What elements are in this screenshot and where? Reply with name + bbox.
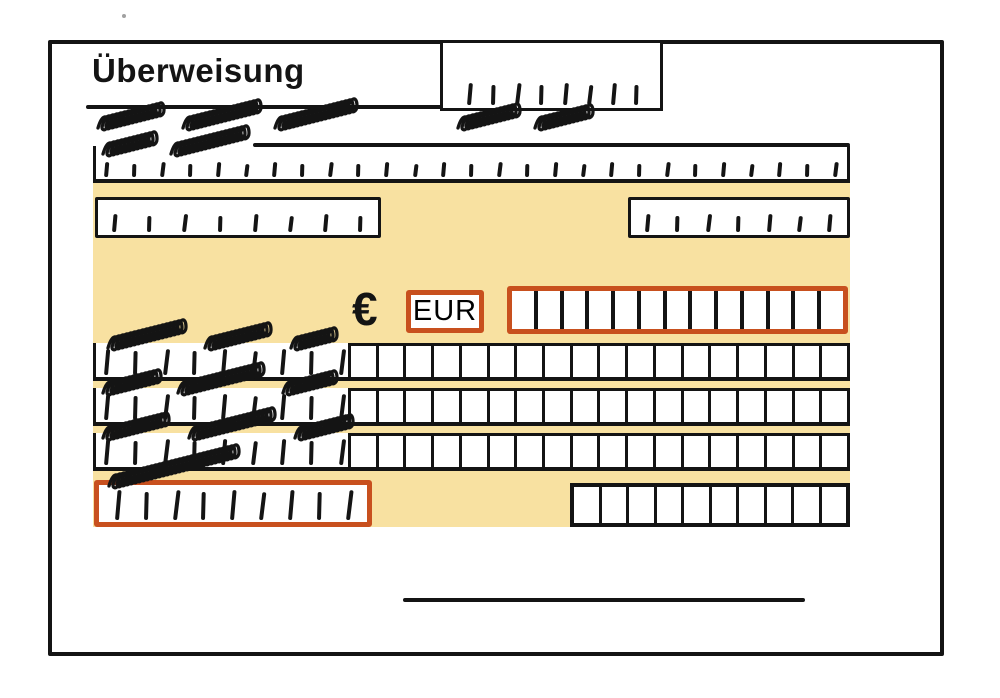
- tick-mark: [188, 164, 192, 177]
- input-cell: [709, 487, 737, 523]
- input-cell: [740, 291, 766, 329]
- tick-mark: [133, 396, 137, 420]
- tick-mark: [230, 490, 236, 520]
- input-cell: [376, 436, 404, 467]
- input-cell: [792, 391, 820, 422]
- tick-mark: [280, 439, 286, 465]
- input-cell: [403, 436, 431, 467]
- tick-mark: [797, 216, 802, 232]
- tick-mark: [441, 162, 446, 177]
- tick-mark: [637, 164, 641, 177]
- tick-mark: [358, 216, 362, 232]
- tick-mark: [317, 492, 321, 520]
- input-cell: [514, 346, 542, 377]
- ink-speck: [122, 14, 126, 18]
- entry-box-left[interactable]: [95, 197, 381, 238]
- signature-line: [403, 598, 805, 602]
- input-cell: [376, 346, 404, 377]
- tick-mark: [346, 490, 353, 520]
- scribble-label: [100, 420, 172, 444]
- input-cell: [764, 436, 792, 467]
- tick-mark: [112, 214, 117, 232]
- input-cell: [597, 436, 625, 467]
- char-input-box-bottom-right[interactable]: [570, 483, 850, 527]
- tick-mark: [609, 162, 614, 177]
- currency-code-box: EUR: [406, 290, 484, 333]
- tick-mark: [147, 216, 151, 232]
- input-cell: [791, 487, 819, 523]
- input-cell: [819, 346, 847, 377]
- tick-mark: [216, 162, 221, 177]
- scribble-label: [106, 468, 241, 492]
- input-cell: [431, 391, 459, 422]
- tick-guides: [645, 214, 831, 232]
- tick-mark: [300, 164, 304, 177]
- input-cell: [764, 391, 792, 422]
- char-cells: [348, 433, 847, 467]
- tick-guides: [112, 214, 362, 232]
- input-cell: [714, 291, 740, 329]
- tick-mark: [251, 441, 257, 465]
- input-cell: [514, 391, 542, 422]
- input-cell: [791, 291, 817, 329]
- scribble-label: [280, 375, 338, 399]
- input-cell: [431, 436, 459, 467]
- tick-mark: [160, 162, 165, 177]
- scribble-label: [95, 110, 167, 134]
- tick-mark: [581, 164, 586, 177]
- input-cell: [764, 346, 792, 377]
- tick-mark: [132, 164, 136, 177]
- input-cell: [819, 391, 847, 422]
- input-cell: [766, 291, 792, 329]
- input-cell: [599, 487, 627, 523]
- input-cell: [570, 436, 598, 467]
- tick-mark: [309, 396, 313, 420]
- input-cell: [708, 346, 736, 377]
- input-cell: [542, 346, 570, 377]
- input-cell: [597, 346, 625, 377]
- tick-mark: [539, 85, 543, 105]
- input-cell: [792, 436, 820, 467]
- input-cell: [817, 291, 843, 329]
- tick-mark: [767, 214, 772, 232]
- scribble-label: [292, 420, 354, 444]
- input-cell: [819, 487, 847, 523]
- transfer-form-illustration: Überweisung € EUR: [0, 0, 1000, 698]
- tick-mark: [827, 214, 832, 232]
- tick-mark: [133, 351, 137, 375]
- input-cell: [431, 346, 459, 377]
- input-cell: [574, 487, 599, 523]
- input-cell: [653, 346, 681, 377]
- scribble-label: [168, 136, 253, 160]
- tick-mark: [133, 441, 137, 465]
- scribble-label: [186, 420, 278, 444]
- input-cell: [459, 436, 487, 467]
- scribble-label: [100, 136, 158, 160]
- input-cell: [534, 291, 560, 329]
- tick-guides: [467, 83, 638, 105]
- scribble-label: [272, 110, 360, 134]
- tick-mark: [491, 85, 495, 105]
- tick-mark: [563, 83, 568, 105]
- input-cell: [736, 487, 764, 523]
- input-cell: [487, 436, 515, 467]
- amount-input-cells[interactable]: [507, 286, 848, 334]
- input-cell: [681, 391, 709, 422]
- tick-mark: [201, 492, 205, 520]
- tick-mark: [413, 164, 418, 177]
- input-cell: [688, 291, 714, 329]
- input-cell: [654, 487, 682, 523]
- tick-mark: [693, 164, 697, 177]
- input-cell: [663, 291, 689, 329]
- euro-symbol: €: [352, 286, 378, 332]
- input-cell: [597, 391, 625, 422]
- scribble-label: [288, 330, 340, 354]
- input-cell: [764, 487, 792, 523]
- scribble-label: [175, 375, 265, 399]
- form-title: Überweisung: [92, 52, 305, 90]
- scribble-label: [105, 330, 190, 354]
- input-cell: [736, 391, 764, 422]
- tick-mark: [634, 85, 638, 105]
- tick-mark: [805, 164, 809, 177]
- reference-entry-box[interactable]: [440, 40, 663, 111]
- tick-mark: [309, 441, 313, 465]
- tick-mark: [280, 349, 286, 375]
- tick-mark: [323, 214, 328, 232]
- tick-mark: [218, 216, 222, 232]
- input-cell: [708, 391, 736, 422]
- tick-mark: [553, 162, 558, 177]
- input-cell: [403, 391, 431, 422]
- tick-mark: [467, 83, 472, 105]
- input-cell: [585, 291, 611, 329]
- input-cell: [625, 346, 653, 377]
- tick-mark: [115, 490, 121, 520]
- input-cell: [653, 391, 681, 422]
- tick-mark: [525, 164, 529, 177]
- input-cell: [637, 291, 663, 329]
- tick-mark: [736, 216, 740, 232]
- input-cell: [736, 436, 764, 467]
- input-cell: [348, 346, 376, 377]
- input-cell: [403, 346, 431, 377]
- scribble-label: [455, 110, 523, 134]
- tick-mark: [309, 351, 313, 375]
- input-cell: [542, 391, 570, 422]
- scribble-label: [100, 375, 162, 399]
- tick-mark: [288, 490, 294, 520]
- input-cell: [542, 436, 570, 467]
- input-cell: [792, 346, 820, 377]
- input-cell: [708, 436, 736, 467]
- input-cell: [626, 487, 654, 523]
- input-cell: [487, 391, 515, 422]
- tick-mark: [328, 162, 333, 177]
- tick-mark: [587, 85, 593, 105]
- tick-mark: [665, 162, 670, 177]
- input-cell: [681, 487, 709, 523]
- tick-mark: [259, 492, 266, 520]
- tick-mark: [675, 216, 679, 232]
- input-cell: [514, 436, 542, 467]
- input-cell: [459, 391, 487, 422]
- tick-mark: [182, 214, 188, 232]
- tick-mark: [104, 162, 109, 177]
- tick-mark: [833, 162, 838, 177]
- tick-guides: [115, 490, 349, 520]
- tick-mark: [749, 164, 754, 177]
- tick-mark: [777, 162, 782, 177]
- input-cell: [459, 346, 487, 377]
- tick-mark: [384, 162, 389, 177]
- tick-mark: [469, 164, 473, 177]
- char-cells: [348, 343, 847, 377]
- char-cells: [348, 388, 847, 422]
- input-cell: [625, 436, 653, 467]
- tick-mark: [244, 164, 249, 177]
- input-cell: [570, 391, 598, 422]
- tick-mark: [288, 216, 293, 232]
- tick-mark: [272, 162, 277, 177]
- input-cell: [376, 391, 404, 422]
- tick-mark: [706, 214, 712, 232]
- entry-box-right[interactable]: [628, 197, 850, 238]
- input-cell: [487, 346, 515, 377]
- tick-guides: [104, 162, 837, 177]
- tick-mark: [192, 396, 196, 420]
- tick-mark: [253, 214, 258, 232]
- input-cell: [819, 436, 847, 467]
- input-cell: [625, 391, 653, 422]
- input-cell: [653, 436, 681, 467]
- tick-mark: [645, 214, 650, 232]
- input-cell: [560, 291, 586, 329]
- scribble-label: [202, 330, 275, 354]
- tick-mark: [356, 164, 360, 177]
- tick-mark: [515, 83, 521, 105]
- tick-mark: [721, 162, 726, 177]
- input-cell: [611, 291, 637, 329]
- input-cell: [681, 346, 709, 377]
- input-cell: [681, 436, 709, 467]
- tick-mark: [611, 83, 616, 105]
- scribble-label: [532, 110, 594, 134]
- input-cell: [512, 291, 534, 329]
- tick-mark: [497, 162, 502, 177]
- input-cell: [570, 346, 598, 377]
- tick-mark: [144, 492, 148, 520]
- tick-mark: [173, 490, 180, 520]
- tick-mark: [192, 351, 196, 375]
- input-cell: [736, 346, 764, 377]
